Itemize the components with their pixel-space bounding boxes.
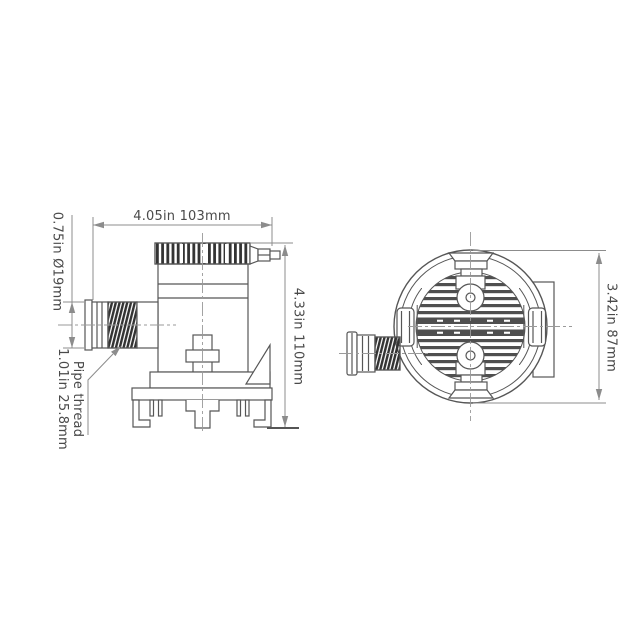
- technical-drawing-canvas: [0, 0, 644, 644]
- label-body-diameter: 3.42in 87mm: [604, 278, 619, 378]
- label-overall-height: 4.33in 110mm: [291, 283, 306, 391]
- side-view: [85, 243, 280, 428]
- drawing-page: 4.05in 103mm 0.75in Ø19mm Pipe thread 1.…: [0, 0, 644, 644]
- pipe-thread-leader: [88, 346, 121, 435]
- label-outlet-diameter: 0.75in Ø19mm: [50, 207, 65, 317]
- base-plate: [132, 388, 272, 400]
- gusset-bracket: [246, 345, 270, 384]
- dimension-outlet-diameter: [63, 215, 84, 348]
- label-pipe-thread-line2: 1.01in 25.8mm: [55, 347, 70, 451]
- hose-barb-outlet: [250, 246, 280, 264]
- right-side-clip: [529, 308, 546, 346]
- right-foot: [254, 400, 271, 427]
- label-pipe-thread: Pipe thread 1.01in 25.8mm: [55, 347, 85, 451]
- label-top-width: 4.05in 103mm: [122, 209, 242, 224]
- label-pipe-thread-line1: Pipe thread: [70, 347, 85, 451]
- left-foot: [133, 400, 150, 427]
